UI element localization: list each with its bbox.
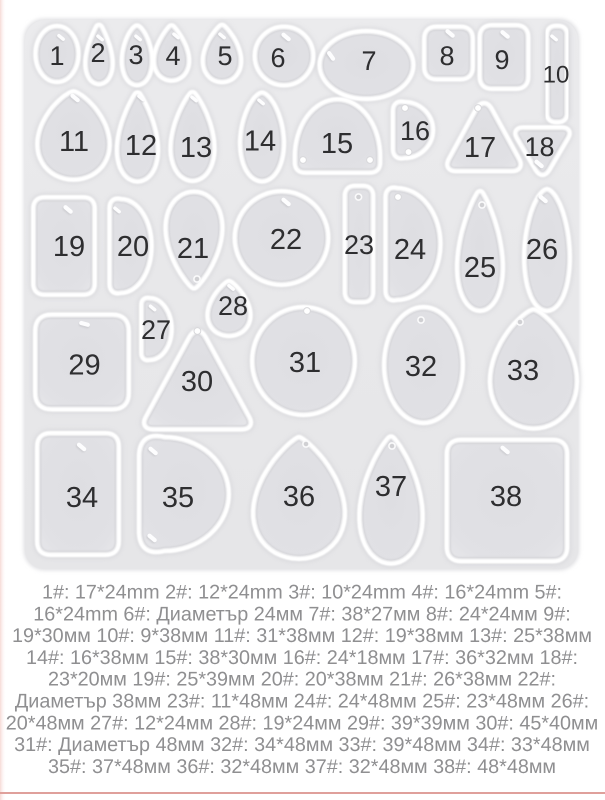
svg-text:12: 12 [125,130,157,162]
svg-text:34: 34 [66,482,98,514]
svg-text:30: 30 [181,366,213,398]
svg-text:11: 11 [59,126,89,158]
svg-text:32: 32 [405,351,437,383]
svg-text:3: 3 [128,40,143,70]
svg-text:31: 31 [289,347,321,379]
svg-text:21: 21 [177,233,209,265]
svg-text:22: 22 [270,224,302,256]
svg-text:24: 24 [394,234,426,266]
svg-text:Диаметър 38мм 23#: 11*48мм 24#: Диаметър 38мм 23#: 11*48мм 24#: 24*48мм … [15,691,589,713]
svg-text:20: 20 [117,231,149,263]
svg-text:18: 18 [524,132,554,162]
svg-text:13: 13 [180,132,212,164]
svg-text:19: 19 [53,231,85,263]
svg-text:35: 35 [162,482,194,514]
svg-text:1#: 17*24mm 2#: 12*24mm 3#: 10: 1#: 17*24mm 2#: 12*24mm 3#: 10*24mm 4#: … [42,582,562,604]
svg-text:36: 36 [283,481,315,513]
svg-text:29: 29 [68,350,100,382]
svg-text:6: 6 [270,43,285,73]
svg-text:20*48мм 27#: 12*24мм 28#: 19*2: 20*48мм 27#: 12*24мм 28#: 19*24мм 29#: 3… [6,712,598,734]
svg-text:2: 2 [90,38,105,68]
svg-text:14: 14 [244,126,276,158]
svg-text:16: 16 [400,116,430,146]
svg-text:16*24mm 6#: Диаметър 24мм 7#:: 16*24mm 6#: Диаметър 24мм 7#: 38*27мм 8#… [33,603,570,625]
svg-text:26: 26 [526,234,558,266]
svg-text:23: 23 [344,230,374,260]
svg-text:28: 28 [218,291,248,321]
svg-text:10: 10 [543,62,570,89]
svg-text:19*30мм 10#: 9*38мм 11#: 31*38: 19*30мм 10#: 9*38мм 11#: 31*38мм 12#: 19… [12,625,592,647]
svg-text:33: 33 [507,355,539,387]
svg-text:17: 17 [464,132,496,164]
svg-text:23*20мм 19#: 25*39мм 20#: 20*3: 23*20мм 19#: 25*39мм 20#: 20*38мм 21#: 2… [48,669,556,691]
svg-text:4: 4 [165,41,180,71]
svg-text:5: 5 [217,41,232,71]
svg-text:37: 37 [375,471,407,503]
svg-text:9: 9 [494,45,509,75]
svg-text:15: 15 [321,128,353,160]
svg-text:27: 27 [141,315,171,345]
svg-text:35#: 37*48мм 36#: 32*48мм 37#:: 35#: 37*48мм 36#: 32*48мм 37#: 32*48мм 3… [48,756,556,778]
svg-text:25: 25 [464,252,496,284]
svg-text:38: 38 [490,481,522,513]
svg-text:8: 8 [439,41,454,71]
svg-text:7: 7 [361,46,376,76]
svg-text:31#: Диаметър 48мм 32#: 34*48м: 31#: Диаметър 48мм 32#: 34*48мм 33#: 39*… [14,734,590,756]
svg-text:14#: 16*38мм 15#: 38*30мм 16#:: 14#: 16*38мм 15#: 38*30мм 16#: 24*18мм 1… [26,647,578,669]
svg-text:1: 1 [49,41,64,71]
